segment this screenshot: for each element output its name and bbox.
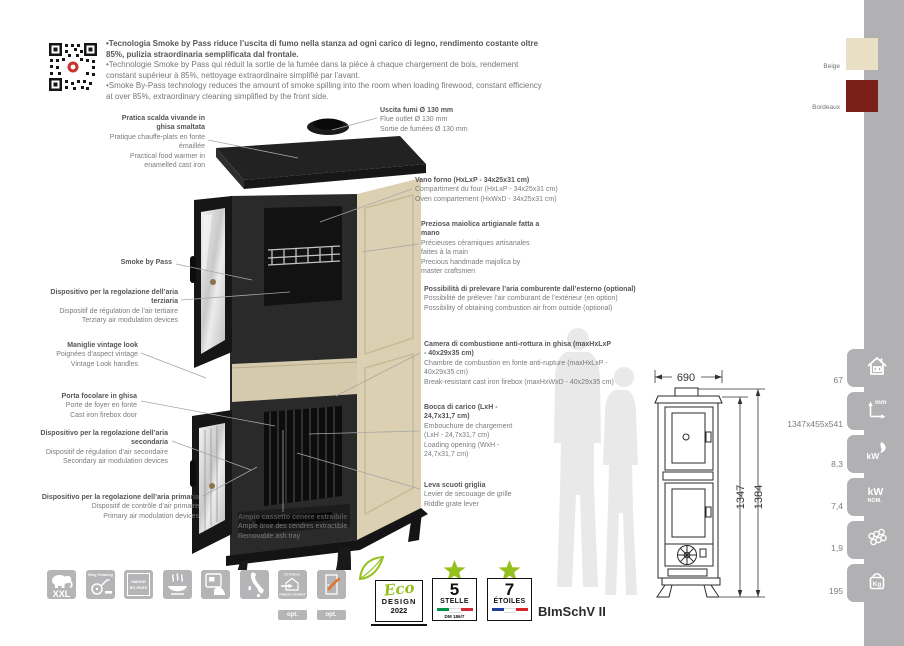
door-flame-icon bbox=[317, 570, 346, 599]
dimensions-mm-icon: mm bbox=[864, 396, 890, 422]
svg-text:SMOKE: SMOKE bbox=[131, 579, 146, 584]
spec-tab-weight: Kg bbox=[847, 564, 904, 602]
callout-oven-compartment: Vano forno (HxLxP - 34x25x31 cm) Compart… bbox=[415, 176, 605, 204]
callout-primary-air: Dispositivo per la regolazione dell’aria… bbox=[34, 493, 199, 521]
spec-value-weight: 195 bbox=[753, 586, 843, 596]
callout-riddle-grate: Leva scuoti griglia Levier de secouage d… bbox=[424, 481, 574, 509]
stelle-label: STELLE bbox=[440, 598, 469, 606]
majolica-tile-hand-icon bbox=[201, 570, 230, 599]
smoke-by-pass-icon: SMOKE BY-PASS bbox=[124, 570, 153, 599]
svg-text:kW: kW bbox=[867, 451, 881, 461]
xxl-elephant-icon: XXL bbox=[47, 570, 76, 599]
feature-food-warmer bbox=[163, 570, 192, 599]
callout-tertiary-air: Dispositivo per la regolazione dell’aria… bbox=[23, 288, 178, 326]
etoiles-number: 7 bbox=[505, 581, 514, 598]
french-flag-bar bbox=[492, 608, 528, 613]
stelle-number: 5 bbox=[450, 581, 459, 598]
opt-badge-air-kit: opt. bbox=[317, 610, 346, 620]
feature-smoke-by-pass: SMOKE BY-PASS bbox=[124, 570, 153, 599]
spec-value-kw-global: 8,3 bbox=[753, 459, 843, 469]
stelle-regulation: DM 186/7 bbox=[445, 614, 465, 619]
callout-loading-opening: Bocca di carico (LxH - 24,7x31,7 cm) Emb… bbox=[424, 403, 516, 459]
spec-tab-kw-global: kW bbox=[847, 435, 904, 473]
weight-kg-icon: Kg bbox=[864, 568, 890, 594]
intro-it: •Tecnologia Smoke by Pass riduce l’uscit… bbox=[106, 39, 542, 60]
callout-flue-outlet: Uscita fumi Ø 130 mm Flue outlet Ø 130 m… bbox=[380, 106, 500, 134]
callout-smoke-by-pass: Smoke by Pass bbox=[62, 258, 172, 267]
feature-easy-cleaning: Easy Cleaning bbox=[86, 570, 115, 599]
external-air-house-icon: EXTERNAL PRIMARY AIR INPUT bbox=[278, 570, 307, 599]
spec-tab-wood-consumption bbox=[847, 521, 904, 559]
seven-etoiles-badge: 7 ÉTOILES bbox=[487, 578, 532, 621]
eco-design-badge: Eco DESIGN 2022 bbox=[375, 580, 423, 622]
callout-firebox-door: Porta focolare in ghisa Porte de foyer e… bbox=[17, 392, 137, 420]
qr-code bbox=[48, 42, 98, 92]
spec-value-dimensions: 1347x455x541 bbox=[753, 419, 843, 429]
svg-text:Easy Cleaning: Easy Cleaning bbox=[88, 573, 113, 577]
five-stars-badge: 5 STELLE DM 186/7 bbox=[432, 578, 477, 621]
feature-made-in-italy bbox=[240, 570, 269, 599]
callout-ash-tray: Ampio cassetto cenere estraibile Ample t… bbox=[238, 513, 398, 541]
eco-year: 2022 bbox=[391, 606, 408, 615]
feature-handmade-majolica bbox=[201, 570, 230, 599]
spec-tab-kw-nominal: kW NOM. bbox=[847, 478, 904, 516]
intro-text: •Tecnologia Smoke by Pass riduce l’uscit… bbox=[106, 39, 542, 102]
house-icon bbox=[864, 353, 890, 379]
food-warmer-icon bbox=[163, 570, 192, 599]
svg-text:EXTERNAL: EXTERNAL bbox=[284, 573, 300, 577]
swatch-bordeaux bbox=[846, 80, 878, 112]
callout-combustion-chamber: Camera di combustione anti-rottura in gh… bbox=[424, 340, 614, 387]
spec-value-kw-nominal: 7,4 bbox=[753, 501, 843, 511]
svg-text:Kg: Kg bbox=[873, 581, 882, 588]
easy-cleaning-icon: Easy Cleaning bbox=[86, 570, 115, 599]
callout-food-warmer: Pratica scalda vivande in ghisa smaltata… bbox=[105, 114, 205, 170]
feature-external-air-kit bbox=[317, 570, 346, 599]
wood-logs-icon bbox=[864, 525, 890, 551]
kw-nominal-icon: kW NOM. bbox=[864, 482, 890, 508]
kw-flame-icon: kW bbox=[864, 439, 890, 465]
spec-value-heatable-volume: 67 bbox=[753, 375, 843, 385]
italian-flag-bar bbox=[437, 608, 473, 613]
dim-height-body: 1347 bbox=[735, 485, 747, 509]
catalog-page: •Tecnologia Smoke by Pass riduce l’uscit… bbox=[0, 0, 904, 646]
swatch-beige bbox=[846, 38, 878, 70]
spec-tab-dimensions: mm bbox=[847, 392, 904, 430]
svg-text:PRIMARY AIR INPUT: PRIMARY AIR INPUT bbox=[279, 593, 306, 597]
feature-external-primary-air: EXTERNAL PRIMARY AIR INPUT bbox=[278, 570, 307, 599]
callout-majolica: Preziosa maiolica artigianale fatta a ma… bbox=[421, 220, 541, 276]
svg-text:kW: kW bbox=[868, 486, 884, 498]
swatch-beige-label: Beige bbox=[770, 63, 840, 70]
stove-dimension-drawing: 690 1347 1384 bbox=[598, 355, 828, 620]
swatch-bordeaux-label: Bordeaux bbox=[770, 104, 840, 111]
eco-leaf-icon bbox=[356, 553, 386, 583]
feature-xxl: XXL bbox=[47, 570, 76, 599]
spec-tab-heatable-volume bbox=[847, 349, 904, 387]
eco-underline bbox=[371, 624, 427, 626]
svg-text:BY-PASS: BY-PASS bbox=[130, 585, 148, 590]
opt-badge-external-air: opt. bbox=[278, 610, 307, 620]
callout-external-air: Possibilità di prelevare l’aria comburen… bbox=[424, 285, 684, 313]
svg-text:NOM.: NOM. bbox=[868, 498, 883, 504]
bimschv-certification: BImSchV II bbox=[538, 604, 606, 619]
spec-value-wood-consumption: 1,9 bbox=[753, 543, 843, 553]
callout-vintage-handles: Maniglie vintage look Poignées d’aspect … bbox=[18, 341, 138, 369]
etoiles-label: ÉTOILES bbox=[494, 598, 526, 606]
italy-map-icon bbox=[240, 570, 269, 599]
stove-photo bbox=[190, 110, 430, 570]
intro-fr: •Technologie Smoke by Pass qui réduit la… bbox=[106, 60, 542, 81]
eco-script: Eco bbox=[383, 580, 415, 598]
dim-width: 690 bbox=[677, 372, 695, 384]
intro-en: •Smoke By-Pass technology reduces the am… bbox=[106, 81, 542, 102]
svg-text:XXL: XXL bbox=[53, 589, 71, 599]
callout-secondary-air: Dispositivo per la regolazione dell’aria… bbox=[8, 429, 168, 467]
svg-text:mm: mm bbox=[875, 399, 887, 406]
